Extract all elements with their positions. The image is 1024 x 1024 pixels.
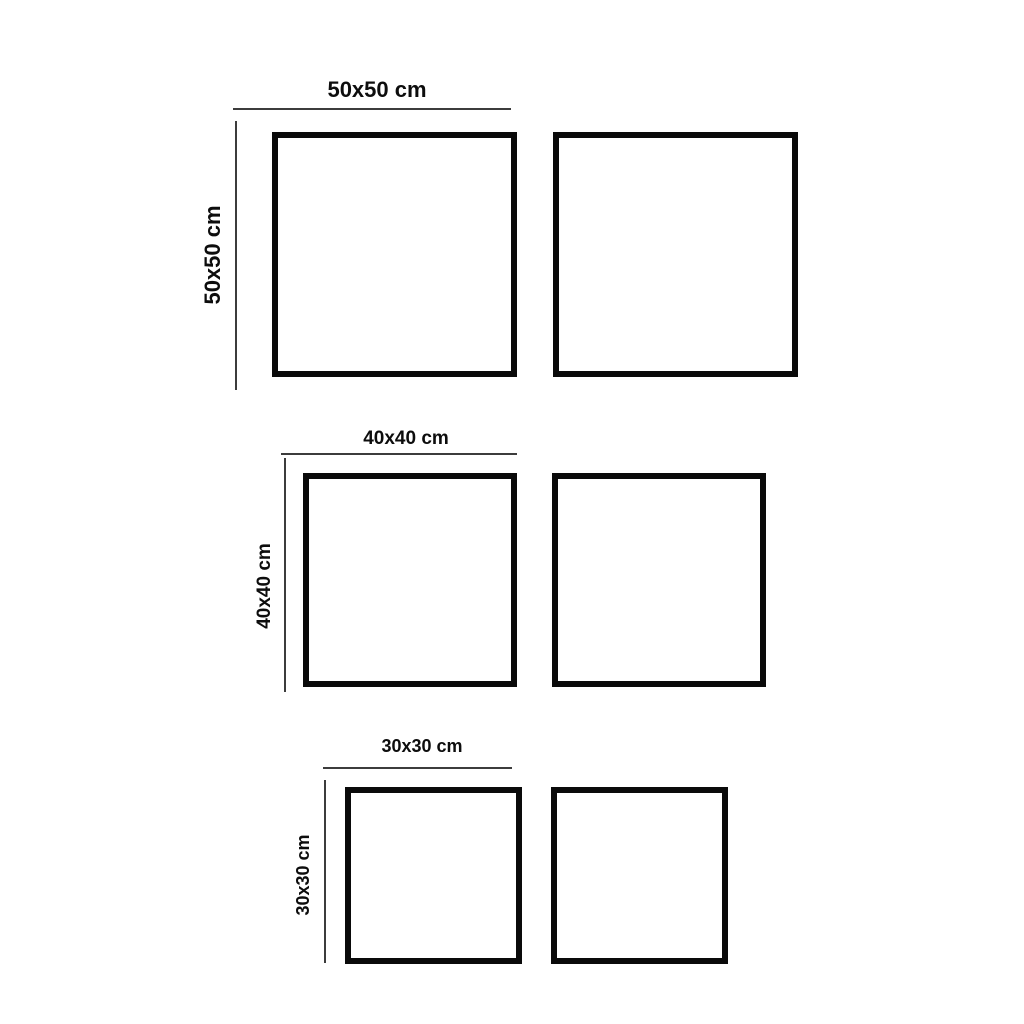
height-dimension-label-50x50: 50x50 cm — [198, 155, 228, 355]
square-frame-30x30-left — [345, 787, 522, 964]
height-dimension-label-40x40: 40x40 cm — [250, 486, 280, 686]
height-dimension-label-30x30: 30x30 cm — [288, 775, 318, 975]
square-frame-40x40-right — [552, 473, 766, 687]
square-frame-50x50-right — [553, 132, 798, 377]
width-dimension-line-30x30 — [323, 767, 512, 769]
width-dimension-label-30x30: 30x30 cm — [322, 731, 522, 761]
height-dimension-line-30x30 — [324, 780, 326, 963]
size-diagram: 50x50 cm 50x50 cm 40x40 cm 40x40 cm 30x3… — [0, 0, 1024, 1024]
square-frame-40x40-left — [303, 473, 517, 687]
width-dimension-label-40x40: 40x40 cm — [306, 424, 506, 454]
square-frame-30x30-right — [551, 787, 728, 964]
width-dimension-line-50x50 — [233, 108, 511, 110]
width-dimension-line-40x40 — [281, 453, 517, 455]
height-dimension-line-40x40 — [284, 458, 286, 692]
width-dimension-label-50x50: 50x50 cm — [277, 75, 477, 105]
height-dimension-line-50x50 — [235, 121, 237, 390]
square-frame-50x50-left — [272, 132, 517, 377]
